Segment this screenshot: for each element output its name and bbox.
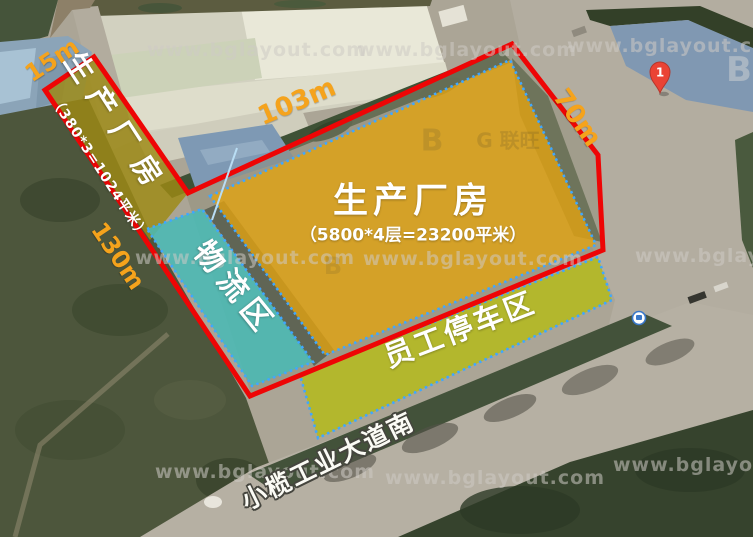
main-building-area: （5800*4层=23200平米）	[300, 228, 526, 245]
terrain-trees	[15, 400, 125, 460]
bus-glyph	[636, 315, 642, 320]
main-building-label: 生产厂房	[333, 185, 493, 220]
logo-watermark: B	[324, 252, 342, 280]
terrain-trees	[72, 284, 168, 336]
logo-watermark: B	[726, 50, 752, 90]
logo-watermark: G 联旺	[476, 125, 539, 154]
watermark-text: www.bglayout.com	[357, 39, 577, 61]
terrain-grass	[154, 380, 226, 420]
watermark-text: www.bglayout.com	[363, 248, 583, 270]
site-plan-map: 1 www.bglayout.com www.bglayout.com www.…	[0, 0, 753, 537]
watermark-text: www.bglayout.com	[385, 467, 605, 489]
watermark-text: www.bglayout.com	[147, 39, 367, 61]
terrain-bush	[138, 3, 182, 13]
terrain-bush	[274, 0, 326, 8]
watermark-text: www.bglayout.com	[613, 454, 753, 476]
road-marking	[204, 496, 222, 508]
watermark-text: www.bglayout.com	[135, 247, 355, 269]
watermark-text: www.bglayout.com	[635, 245, 753, 267]
terrain-trees	[460, 486, 580, 534]
terrain-trees	[20, 178, 100, 222]
bus-stop-icon[interactable]	[633, 312, 646, 325]
logo-watermark: B	[421, 124, 444, 159]
pin-number: 1	[656, 66, 664, 80]
